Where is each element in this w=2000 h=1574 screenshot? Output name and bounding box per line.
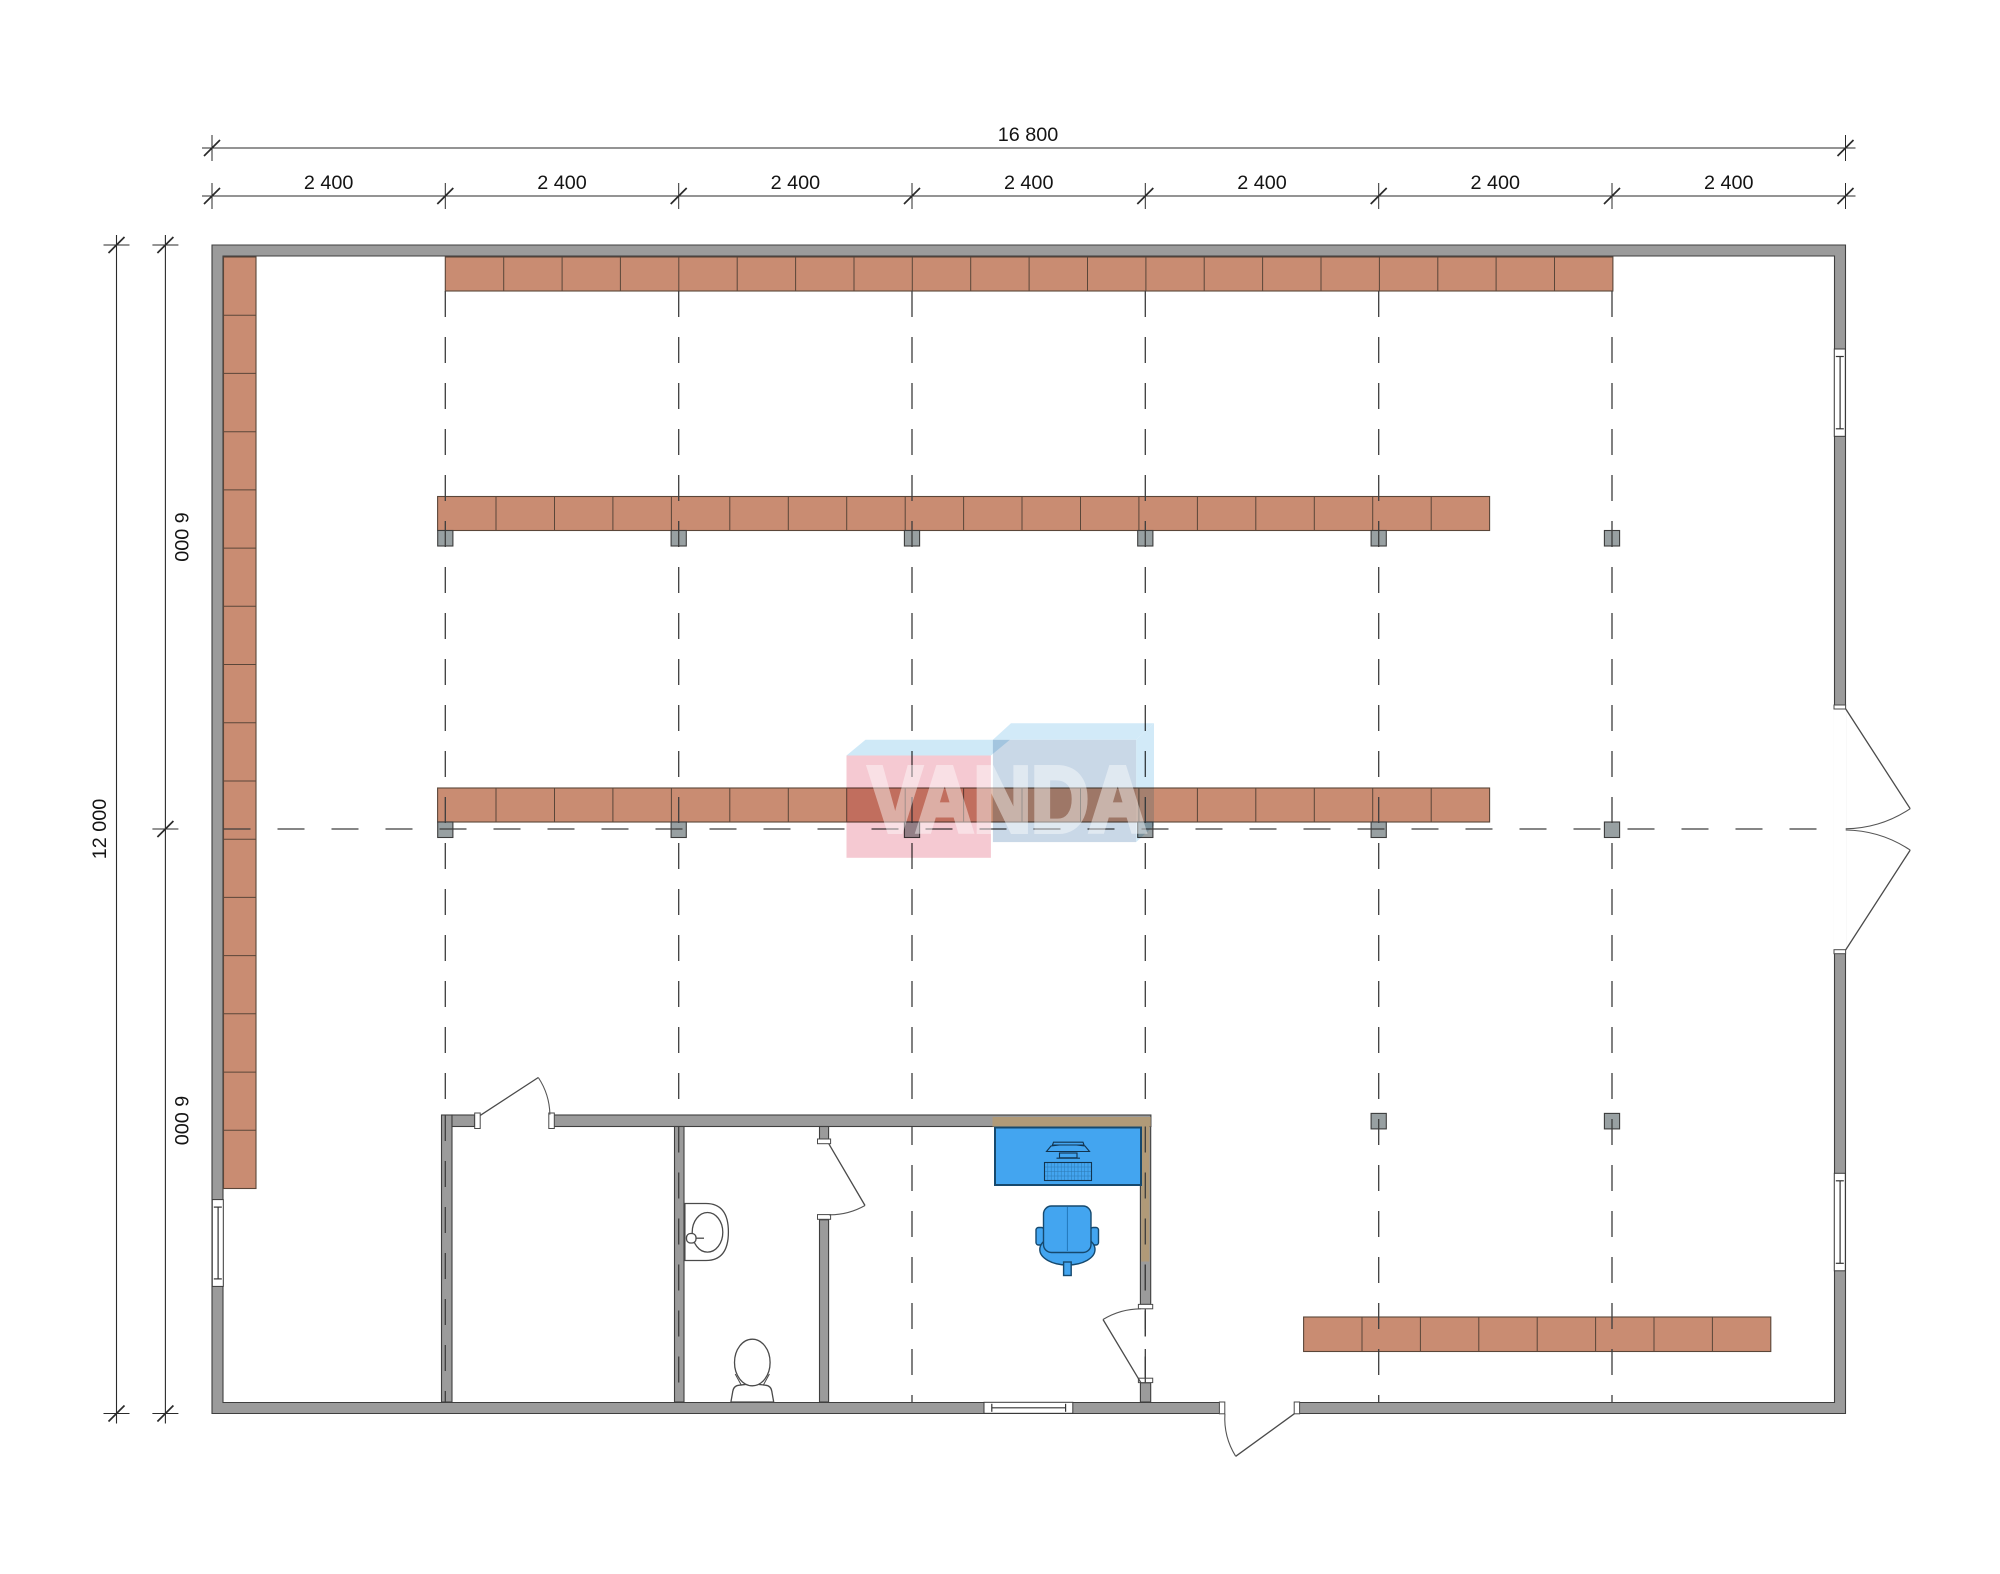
svg-text:2 400: 2 400 <box>1704 172 1754 194</box>
svg-text:2 400: 2 400 <box>537 172 587 194</box>
svg-text:VANDA: VANDA <box>869 748 1147 852</box>
svg-text:12 000: 12 000 <box>89 799 111 860</box>
svg-text:2 400: 2 400 <box>1004 172 1054 194</box>
svg-text:2 400: 2 400 <box>1471 172 1521 194</box>
svg-text:6 000: 6 000 <box>170 1096 192 1146</box>
svg-text:2 400: 2 400 <box>771 172 821 194</box>
svg-text:2 400: 2 400 <box>1237 172 1287 194</box>
svg-text:6 000: 6 000 <box>170 512 192 562</box>
svg-text:2 400: 2 400 <box>304 172 354 194</box>
svg-text:16 800: 16 800 <box>998 124 1059 146</box>
